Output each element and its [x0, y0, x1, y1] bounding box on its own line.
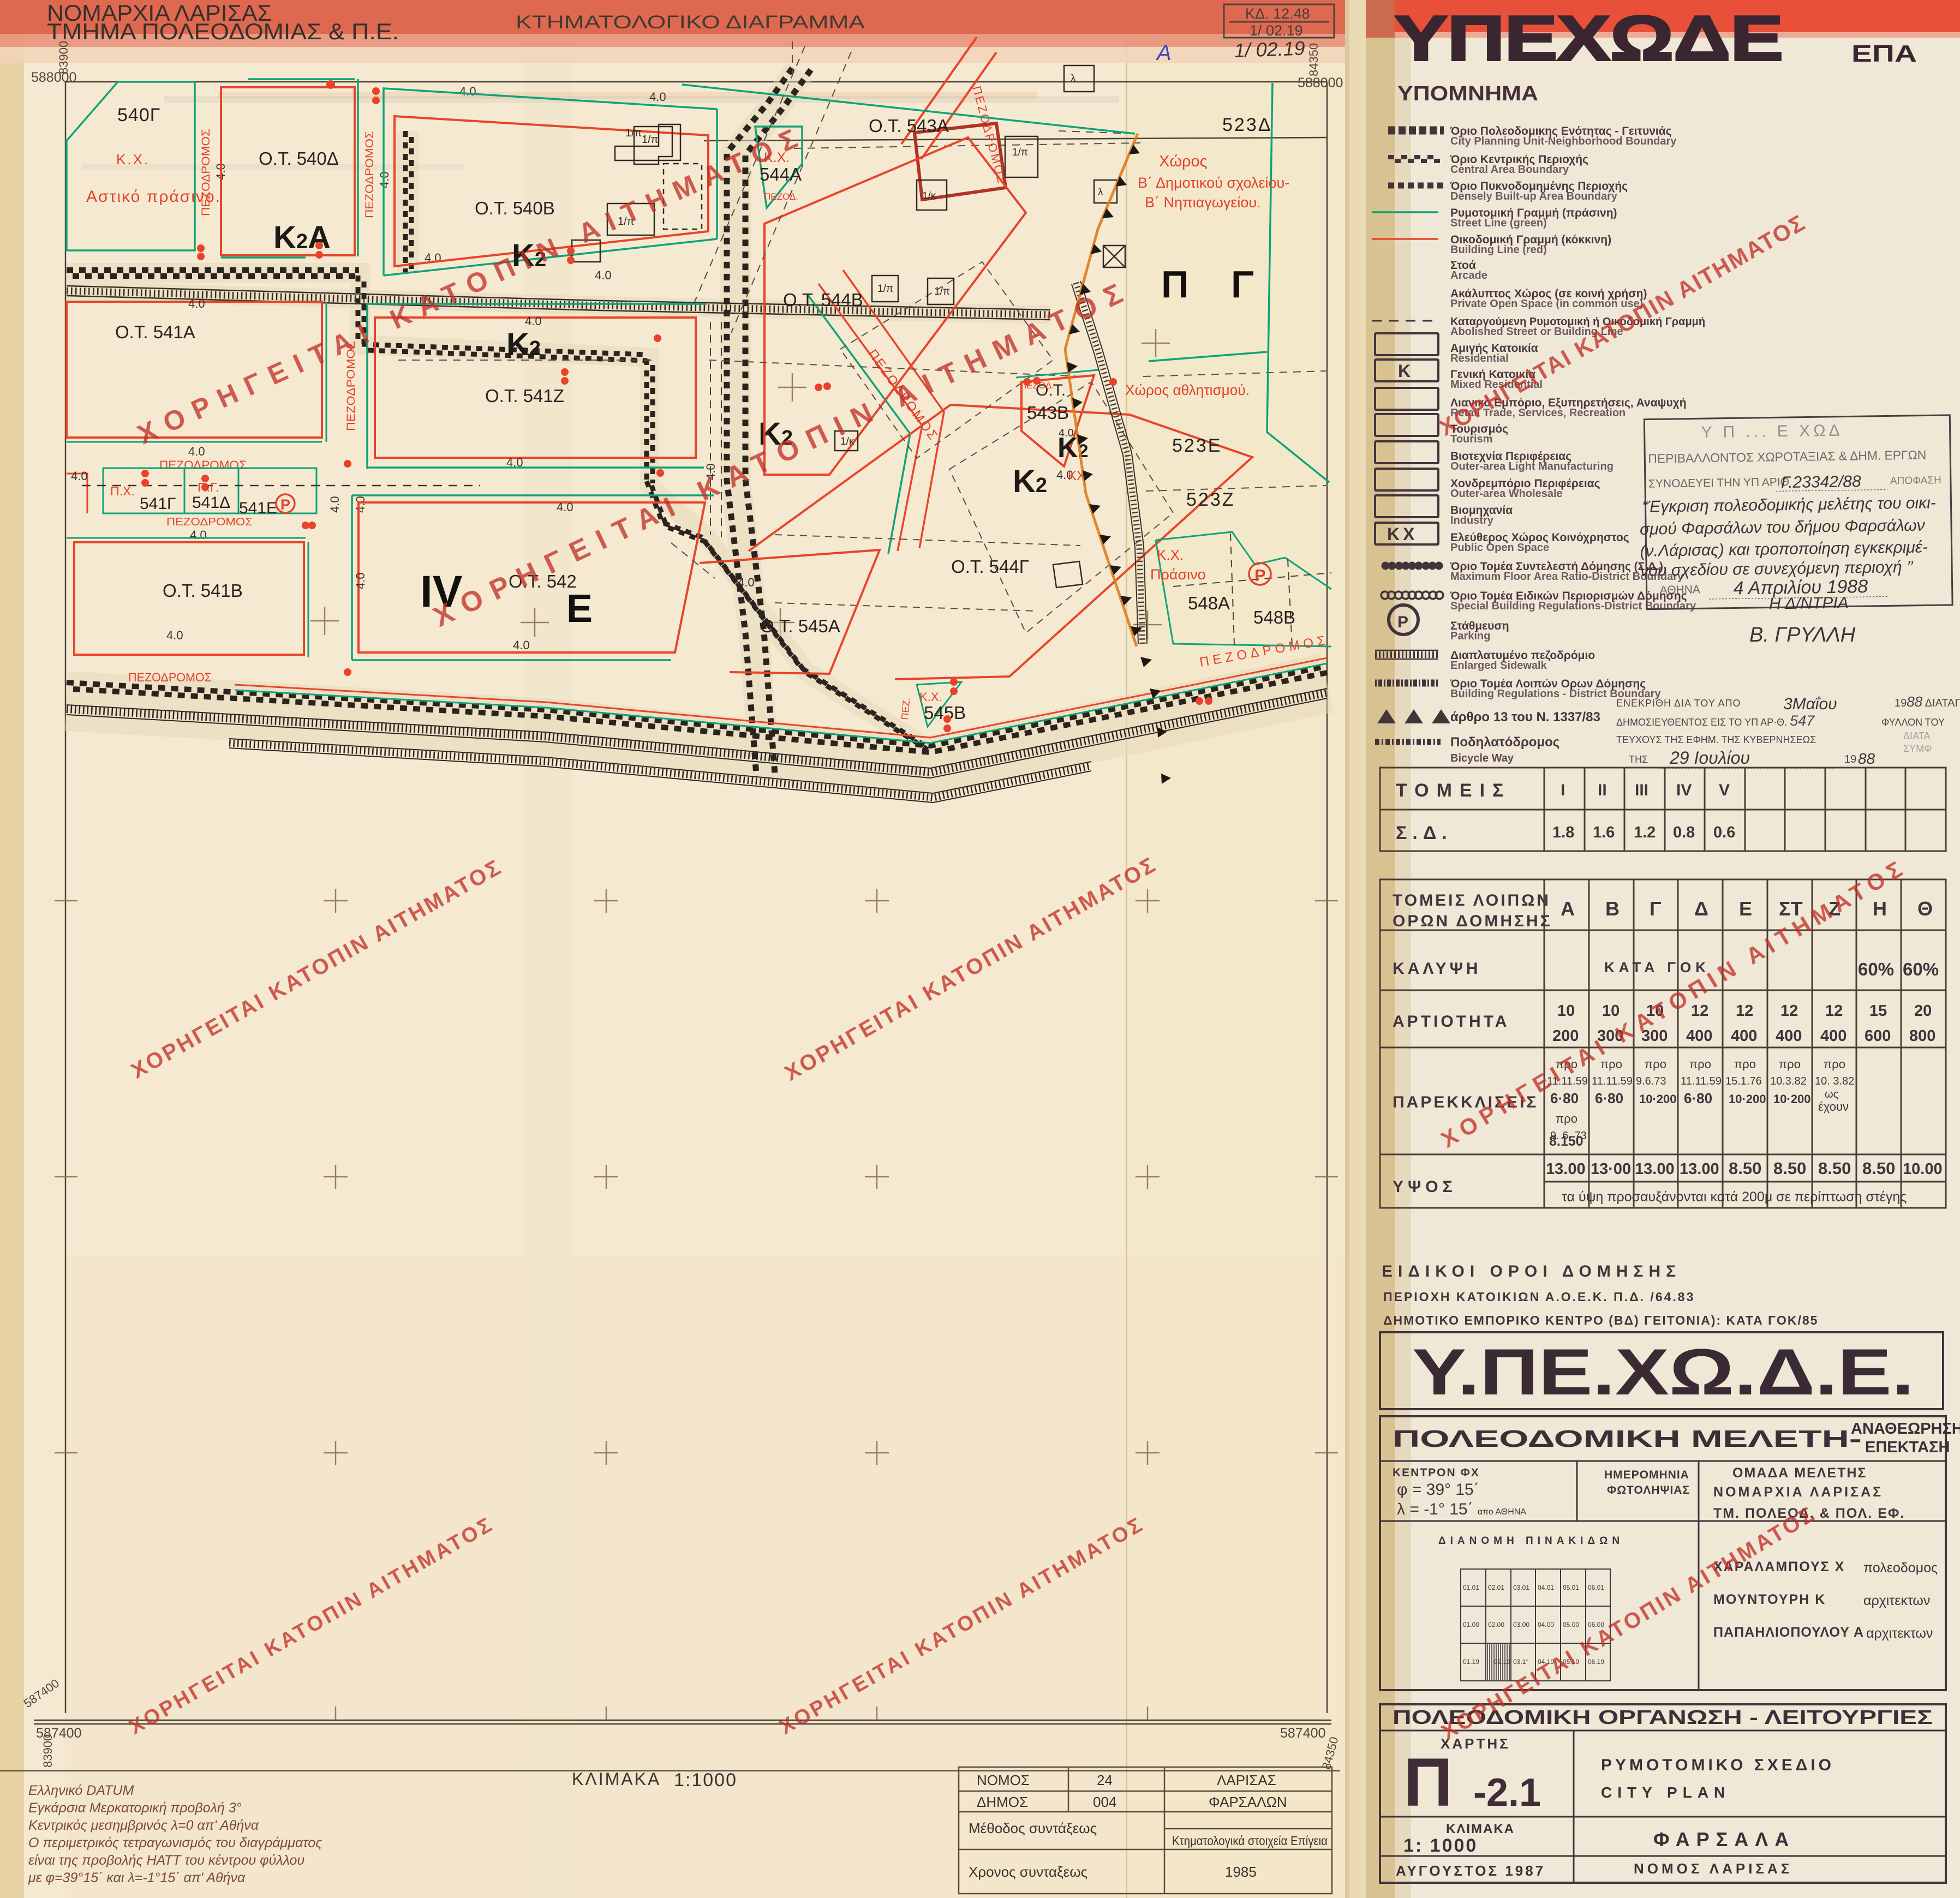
svg-text:Β΄ Δημοτικού σχολείου-: Β΄ Δημοτικού σχολείου-	[1138, 175, 1289, 191]
svg-text:13.00: 13.00	[1546, 1160, 1586, 1178]
svg-text:V: V	[1719, 781, 1730, 799]
svg-text:4.0: 4.0	[557, 500, 573, 514]
svg-text:ΝΟΜΑΡΧΙΑ ΛΑΡΙΣΑΣ: ΝΟΜΑΡΧΙΑ ΛΑΡΙΣΑΣ	[1713, 1484, 1883, 1500]
svg-text:Outer-area Light Manufacturing: Outer-area Light Manufacturing	[1450, 460, 1614, 472]
svg-text:Ελληνικό DATUM: Ελληνικό DATUM	[28, 1783, 134, 1798]
svg-text:Enlarged Sidewalk: Enlarged Sidewalk	[1450, 660, 1547, 672]
svg-text:-2.1: -2.1	[1473, 1771, 1541, 1815]
svg-text:01.00: 01.00	[1463, 1621, 1479, 1628]
svg-text:800: 800	[1909, 1027, 1935, 1045]
svg-text:City Planning Unit-Neighborhoo: City Planning Unit-Neighborhood Boundary	[1450, 135, 1677, 147]
svg-text:ΤΜΗΜΑ ΠΟΛΕΟΔΟΜΙΑΣ & Π.Ε.: ΤΜΗΜΑ ΠΟΛΕΟΔΟΜΙΑΣ & Π.Ε.	[47, 19, 399, 44]
svg-text:ΠΑΠΑΗΛΙΟΠΟΥΛΟΥ Α: ΠΑΠΑΗΛΙΟΠΟΥΛΟΥ Α	[1713, 1625, 1864, 1640]
svg-text:ΑΥΓΟΥΣΤΟΣ 1987: ΑΥΓΟΥΣΤΟΣ 1987	[1396, 1863, 1545, 1879]
svg-text:01.01: 01.01	[1463, 1584, 1479, 1591]
svg-text:Special Building Regulations-D: Special Building Regulations-District Bo…	[1450, 600, 1696, 612]
svg-text:Χώρος αθλητισμού.: Χώρος αθλητισμού.	[1125, 382, 1250, 398]
svg-text:Parking: Parking	[1450, 630, 1490, 642]
svg-text:11.11.59: 11.11.59	[1592, 1075, 1633, 1087]
svg-text:02.00: 02.00	[1488, 1621, 1504, 1628]
svg-text:λ: λ	[1098, 187, 1103, 198]
svg-text:Β: Β	[1605, 897, 1620, 920]
svg-text:Street Line (green): Street Line (green)	[1450, 217, 1547, 229]
svg-text:4.0: 4.0	[188, 445, 205, 458]
svg-text:Ο.Τ. 543Α: Ο.Τ. 543Α	[869, 116, 949, 136]
svg-text:Α: Α	[1561, 897, 1575, 920]
svg-text:P: P	[1254, 566, 1266, 585]
svg-text:523Ζ: 523Ζ	[1186, 489, 1235, 510]
svg-text:έχουν: έχουν	[1818, 1100, 1849, 1113]
svg-text:P: P	[1397, 613, 1408, 631]
svg-text:ΔΗΜΟΣ: ΔΗΜΟΣ	[977, 1794, 1028, 1810]
svg-text:9.6.73: 9.6.73	[1636, 1075, 1666, 1087]
svg-text:ΤΟΜΕΙΣ ΛΟΙΠΩΝ: ΤΟΜΕΙΣ ΛΟΙΠΩΝ	[1393, 891, 1551, 909]
svg-text:8.50: 8.50	[1729, 1159, 1761, 1178]
svg-text:01.19: 01.19	[1463, 1658, 1479, 1666]
svg-text:06.01: 06.01	[1588, 1584, 1604, 1591]
svg-text:04.01: 04.01	[1538, 1584, 1554, 1591]
svg-text:400: 400	[1686, 1027, 1712, 1045]
svg-text:Densely Built-up Area Boundary: Densely Built-up Area Boundary	[1450, 190, 1618, 202]
svg-text:8.50: 8.50	[1773, 1159, 1806, 1178]
svg-text:10·200: 10·200	[1773, 1092, 1811, 1106]
svg-text:Ποδηλατόδρομος: Ποδηλατόδρομος	[1450, 735, 1559, 750]
svg-text:ως: ως	[1825, 1088, 1839, 1100]
svg-text:ΤΗΣ: ΤΗΣ	[1629, 754, 1648, 765]
svg-text:Χώρος: Χώρος	[1159, 153, 1208, 170]
svg-text:Ο.Τ. 540Δ: Ο.Τ. 540Δ	[259, 148, 339, 169]
svg-text:84350: 84350	[1307, 43, 1320, 76]
svg-text:400: 400	[1776, 1027, 1802, 1045]
svg-text:ΚΔ. 12.48: ΚΔ. 12.48	[1245, 5, 1310, 22]
svg-text:Residential: Residential	[1450, 352, 1509, 364]
svg-text:Ε: Ε	[1739, 897, 1752, 920]
svg-text:ΜΟΥΝΤΟΥΡΗ Κ: ΜΟΥΝΤΟΥΡΗ Κ	[1713, 1592, 1826, 1607]
svg-text:Ο.Τ. 544Β: Ο.Τ. 544Β	[783, 290, 863, 310]
svg-text:Κ: Κ	[1398, 361, 1411, 381]
svg-text:4.0: 4.0	[328, 496, 342, 513]
svg-text:ΑΝΑΘΕΩΡΗΣΗ: ΑΝΑΘΕΩΡΗΣΗ	[1851, 1420, 1960, 1438]
svg-text:Εγκάρσια Μερκατορική προβολ: Εγκάρσια Μερκατορική προβολή 3°	[28, 1800, 242, 1816]
svg-text:6·80: 6·80	[1684, 1090, 1712, 1106]
svg-text:Κ.Χ.: Κ.Χ.	[919, 690, 942, 704]
svg-text:Πράσινο: Πράσινο	[1150, 566, 1206, 583]
svg-text:12: 12	[1736, 1002, 1753, 1020]
svg-text:ΡΥΜΟΤΟΜΙΚΟ ΣΧΕΔΙΟ: ΡΥΜΟΤΟΜΙΚΟ ΣΧΕΔΙΟ	[1601, 1756, 1834, 1774]
svg-text:541Γ: 541Γ	[140, 495, 176, 513]
svg-text:ΕΠΕΚΤΑΣΗ: ΕΠΕΚΤΑΣΗ	[1865, 1439, 1950, 1456]
svg-text:ΔΗΜΟΤΙΚΟ ΕΜΠΟΡΙΚΟ ΚΕΝΤΡΟ: ΔΗΜΟΤΙΚΟ ΕΜΠΟΡΙΚΟ ΚΕΝΤΡΟ (ΒΔ) ΓΕΙΤΟΝΙΑ):…	[1383, 1313, 1818, 1327]
svg-text:με φ=39°15΄ και λ=-1°15΄ απ': με φ=39°15΄ και λ=-1°15΄ απ' Αθήνα	[28, 1870, 246, 1885]
svg-text:12: 12	[1780, 1002, 1798, 1020]
svg-text:1/π: 1/π	[642, 134, 658, 146]
svg-text:ΕΠΑ: ΕΠΑ	[1851, 40, 1917, 67]
svg-text:πολεοδομος: πολεοδομος	[1863, 1560, 1938, 1576]
svg-text:8.150: 8.150	[1549, 1134, 1583, 1149]
svg-text:6·80: 6·80	[1550, 1090, 1579, 1106]
svg-text:12: 12	[1691, 1002, 1708, 1020]
svg-text:004: 004	[1093, 1794, 1116, 1810]
svg-text:10·200: 10·200	[1639, 1092, 1677, 1106]
svg-text:6·80: 6·80	[1595, 1090, 1623, 1106]
svg-text:Κτηματολογικά στοιχεία Επίγει: Κτηματολογικά στοιχεία Επίγεια	[1172, 1834, 1328, 1848]
svg-text:προ: προ	[1734, 1057, 1756, 1071]
svg-text:ΙΙ: ΙΙ	[1598, 781, 1607, 799]
svg-text:Ο.Τ. 545Α: Ο.Τ. 545Α	[760, 616, 840, 636]
svg-text:ΑΘΗΝΑ: ΑΘΗΝΑ	[1660, 583, 1701, 596]
svg-text:ΠΕΖΟΔ.: ΠΕΖΟΔ.	[764, 191, 798, 202]
svg-text:4.0: 4.0	[506, 456, 523, 469]
svg-text:13·00: 13·00	[1591, 1160, 1631, 1178]
svg-text:400: 400	[1820, 1027, 1847, 1045]
svg-text:Private Open Space (in common: Private Open Space (in common use)	[1450, 298, 1643, 310]
svg-text:543Β: 543Β	[1027, 403, 1069, 423]
svg-text:ΣΥΜΦ: ΣΥΜΦ	[1903, 743, 1932, 754]
svg-text:Ο.Τ. 541Β: Ο.Τ. 541Β	[163, 580, 243, 601]
svg-text:ΟΡΩΝ ΔΟΜΗΣΗΣ: ΟΡΩΝ ΔΟΜΗΣΗΣ	[1393, 912, 1552, 930]
svg-text:Γ: Γ	[1231, 263, 1254, 306]
svg-text:Building Line (red): Building Line (red)	[1450, 244, 1547, 256]
svg-text:4.0: 4.0	[525, 314, 542, 328]
svg-text:10: 10	[1602, 1002, 1620, 1020]
svg-text:Ο.Τ. 540Β: Ο.Τ. 540Β	[475, 198, 555, 218]
svg-text:Ο.Τ. 541Α: Ο.Τ. 541Α	[115, 322, 195, 342]
svg-text:Π: Π	[1161, 263, 1189, 306]
svg-text:προ: προ	[1689, 1057, 1711, 1071]
svg-text:ΔΙΑΝΟΜΗ ΠΙΝΑΚΙΔΩΝ: ΔΙΑΝΟΜΗ ΠΙΝΑΚΙΔΩΝ	[1438, 1535, 1624, 1547]
svg-text:αρχιτεκτων: αρχιτεκτων	[1863, 1593, 1930, 1608]
svg-text:E: E	[566, 587, 593, 631]
svg-text:ΑΡΤΙΟΤΗΤΑ: ΑΡΤΙΟΤΗΤΑ	[1393, 1013, 1509, 1031]
svg-text:Π.Χ.: Π.Χ.	[110, 484, 135, 498]
svg-text:Δ: Δ	[1694, 897, 1708, 920]
svg-text:Η Δ/ΝΤΡΙΑ: Η Δ/ΝΤΡΙΑ	[1769, 594, 1849, 613]
svg-text:ΝΟΜΟΣ: ΝΟΜΟΣ	[977, 1772, 1030, 1788]
svg-text:προ: προ	[1556, 1112, 1577, 1125]
svg-text:ΙΙΙ: ΙΙΙ	[1635, 781, 1648, 799]
svg-text:04.00: 04.00	[1538, 1621, 1554, 1628]
svg-text:ΠΟΛΕΟΔΟΜΙΚΗ ΜΕΛΕΤΗ-: ΠΟΛΕΟΔΟΜΙΚΗ ΜΕΛΕΤΗ-	[1393, 1426, 1862, 1452]
svg-text:A: A	[1156, 41, 1172, 65]
svg-text:83900: 83900	[57, 41, 70, 74]
svg-text:ΦΑΡΣΑΛΩΝ: ΦΑΡΣΑΛΩΝ	[1209, 1794, 1287, 1810]
svg-text:ΠΕΖΟΔΡΟΜΟΣ: ΠΕΖΟΔΡΟΜΟΣ	[166, 516, 253, 528]
svg-text:10·200: 10·200	[1729, 1092, 1766, 1106]
svg-text:19: 19	[1844, 753, 1856, 765]
svg-text:541Ε: 541Ε	[239, 499, 277, 517]
svg-text:ΚΕΝΤΡΟΝ ΦΧ: ΚΕΝΤΡΟΝ ΦΧ	[1393, 1466, 1480, 1479]
svg-text:ΗΜΕΡΟΜΗΝΙΑ: ΗΜΕΡΟΜΗΝΙΑ	[1604, 1469, 1689, 1481]
svg-text:02.01: 02.01	[1488, 1584, 1504, 1591]
svg-text:1:1000: 1:1000	[674, 1770, 737, 1791]
svg-text:10.00: 10.00	[1903, 1160, 1943, 1178]
svg-text:4.0: 4.0	[188, 297, 205, 310]
svg-text:Κ.Χ.: Κ.Χ.	[1157, 547, 1184, 563]
svg-text:προ: προ	[1645, 1057, 1666, 1071]
svg-text:11.11.59: 11.11.59	[1681, 1075, 1722, 1087]
svg-text:05.00: 05.00	[1563, 1621, 1579, 1628]
svg-text:4.0: 4.0	[71, 469, 88, 483]
svg-text:Ο.Τ. 544Γ: Ο.Τ. 544Γ	[951, 556, 1029, 577]
svg-text:600: 600	[1865, 1027, 1891, 1045]
svg-text:10.3.82: 10.3.82	[1770, 1075, 1807, 1087]
svg-text:1/ 02.19: 1/ 02.19	[1250, 22, 1303, 39]
svg-text:ΙV: ΙV	[1676, 781, 1692, 799]
svg-text:4.0: 4.0	[513, 638, 530, 652]
svg-text:8.50: 8.50	[1818, 1159, 1851, 1178]
svg-text:ΔΙΑΤΑ: ΔΙΑΤΑ	[1903, 731, 1930, 741]
svg-text:ΛΑΡΙΣΑΣ: ΛΑΡΙΣΑΣ	[1217, 1772, 1276, 1788]
svg-text:άρθρο 13 του Ν. 1337/83: άρθρο 13 του Ν. 1337/83	[1450, 710, 1600, 725]
svg-text:03.1°: 03.1°	[1513, 1658, 1528, 1666]
svg-text:15: 15	[1869, 1002, 1887, 1020]
svg-text:4.0: 4.0	[190, 528, 207, 542]
svg-text:4.0: 4.0	[459, 85, 476, 98]
svg-text:φ = 39° 15΄: φ = 39° 15΄	[1397, 1481, 1479, 1499]
svg-text:24: 24	[1097, 1772, 1113, 1788]
svg-text:541Δ: 541Δ	[192, 494, 230, 512]
svg-text:Υ.ΠΕ.ΧΩ.Δ.Ε.: Υ.ΠΕ.ΧΩ.Δ.Ε.	[1412, 1336, 1914, 1409]
svg-text:1.6: 1.6	[1593, 824, 1615, 841]
svg-text:P: P	[280, 496, 290, 513]
svg-text:Μέθοδος συντάξεως: Μέθοδος συντάξεως	[969, 1820, 1097, 1836]
svg-text:προ: προ	[1779, 1057, 1801, 1071]
svg-text:1/π: 1/π	[877, 283, 893, 295]
svg-text:ΠΕΖ.: ΠΕΖ.	[899, 697, 912, 721]
svg-text:τα ύψη προσαυξάνονται κατά: τα ύψη προσαυξάνονται κατά 200μ σε περίπ…	[1562, 1189, 1907, 1205]
svg-text:CITY PLAN: CITY PLAN	[1601, 1784, 1730, 1801]
svg-text:60%: 60%	[1903, 959, 1939, 979]
svg-text:4.0: 4.0	[354, 496, 367, 513]
svg-text:8.50: 8.50	[1862, 1159, 1895, 1178]
svg-text:ΥΨΟΣ: ΥΨΟΣ	[1393, 1178, 1457, 1196]
svg-text:Arcade: Arcade	[1450, 270, 1487, 282]
svg-text:1985: 1985	[1225, 1864, 1257, 1880]
svg-text:1/κ: 1/κ	[922, 190, 936, 202]
svg-text:05.01: 05.01	[1563, 1584, 1579, 1591]
svg-text:νου σχεδίου σε συνεχόμενη περι: νου σχεδίου σε συνεχόμενη περιοχή ’’	[1640, 558, 1914, 580]
svg-text:ΠΕΖΟΔΡΟΜΟΣ: ΠΕΖΟΔΡΟΜΟΣ	[200, 129, 212, 216]
svg-text:ΚΛΙΜΑΚΑ: ΚΛΙΜΑΚΑ	[572, 1769, 661, 1789]
svg-text:1/ 02.19: 1/ 02.19	[1234, 37, 1305, 62]
svg-text:4.0: 4.0	[738, 576, 755, 589]
svg-text:88: 88	[1858, 750, 1875, 767]
svg-text:1/π: 1/π	[934, 286, 950, 297]
svg-text:Ι: Ι	[1561, 781, 1565, 799]
svg-text:Central Area Boundary: Central Area Boundary	[1450, 164, 1569, 176]
svg-text:ΣΥΝΟΔΕΥΕΙ ΤΗΝ ΥΠ ΑΡΙΘ: ΣΥΝΟΔΕΥΕΙ ΤΗΝ ΥΠ ΑΡΙΘ	[1648, 476, 1789, 490]
svg-text:83900: 83900	[41, 1734, 55, 1768]
svg-text:ΕΝΕΚΡΙΘΗ ΔΙΑ ΤΟΥ ΑΠΟ: ΕΝΕΚΡΙΘΗ ΔΙΑ ΤΟΥ ΑΠΟ	[1616, 698, 1741, 709]
svg-text:Χρονος συνταξεως: Χρονος συνταξεως	[969, 1864, 1087, 1880]
svg-text:Bicycle Way: Bicycle Way	[1450, 752, 1514, 764]
svg-text:4.0: 4.0	[354, 572, 367, 589]
svg-text:ΥΠΟΜΝΗΜΑ: ΥΠΟΜΝΗΜΑ	[1397, 82, 1538, 105]
svg-text:60%: 60%	[1858, 959, 1894, 979]
svg-text:Industry: Industry	[1450, 514, 1494, 526]
svg-text:ΕΙΔΙΚΟΙ ΟΡΟΙ ΔΟΜΗΣΗΣ: ΕΙΔΙΚΟΙ ΟΡΟΙ ΔΟΜΗΣΗΣ	[1382, 1262, 1681, 1280]
svg-text:1/π: 1/π	[1012, 147, 1028, 158]
svg-text:02.19: 02.19	[1494, 1658, 1510, 1666]
svg-text:ΚΑΛΥΨΗ: ΚΑΛΥΨΗ	[1393, 960, 1481, 978]
svg-text:1: 1000: 1: 1000	[1403, 1835, 1478, 1856]
svg-text:0.6: 0.6	[1713, 824, 1735, 841]
svg-text:13.00: 13.00	[1635, 1160, 1675, 1178]
svg-text:ΚΑΤΑ ΓΟΚ: ΚΑΤΑ ΓΟΚ	[1604, 959, 1710, 975]
svg-text:Υ Π ... Ε ΧΩΔ: Υ Π ... Ε ΧΩΔ	[1701, 422, 1843, 442]
svg-text:αρχιτεκτων: αρχιτεκτων	[1866, 1626, 1933, 1641]
svg-text:ΠΕΡΙΟΧΗ ΚΑΤΟΙΚΙΩΝ Α.Ο.Ε.Κ.: ΠΕΡΙΟΧΗ ΚΑΤΟΙΚΙΩΝ Α.Ο.Ε.Κ. Π.Δ. /64.83	[1383, 1290, 1695, 1304]
svg-text:Κεντρικός μεσημβρινός λ=0 α: Κεντρικός μεσημβρινός λ=0 απ' Αθήνα	[28, 1818, 259, 1833]
svg-text:ΤΟΜΕΙΣ: ΤΟΜΕΙΣ	[1396, 780, 1511, 801]
svg-text:Γ.23342/88: Γ.23342/88	[1781, 472, 1861, 492]
svg-text:Η: Η	[1873, 897, 1887, 920]
svg-text:ΚΧ: ΚΧ	[1387, 524, 1418, 544]
svg-text:Π: Π	[1403, 1745, 1453, 1821]
svg-text:είναι της προβολής ΗΑΤΤ το: είναι της προβολής ΗΑΤΤ του κέντρου φύλλ…	[28, 1853, 304, 1868]
svg-text:540Γ: 540Γ	[117, 105, 160, 125]
svg-text:ΦΩΤΟΛΗΨΙΑΣ: ΦΩΤΟΛΗΨΙΑΣ	[1607, 1484, 1690, 1496]
svg-text:3Μαΐου: 3Μαΐου	[1783, 695, 1837, 713]
svg-text:ΠΕΖΟΔΡΟΜΟΣ: ΠΕΖΟΔΡΟΜΟΣ	[128, 670, 212, 684]
svg-text:ΠΕΖΟΔΡΟΜΟΣ: ΠΕΖΟΔΡΟΜΟΣ	[159, 458, 247, 472]
svg-text:Ο.Τ. 541Ζ: Ο.Τ. 541Ζ	[485, 386, 564, 406]
svg-text:Σ.Δ.: Σ.Δ.	[1396, 823, 1453, 843]
svg-text:10: 10	[1557, 1002, 1575, 1020]
svg-text:Κ.Χ.: Κ.Χ.	[116, 151, 150, 167]
svg-text:20: 20	[1914, 1002, 1932, 1020]
svg-text:588000: 588000	[1298, 75, 1343, 91]
svg-text:03.01: 03.01	[1513, 1584, 1529, 1591]
svg-text:200: 200	[1552, 1027, 1579, 1045]
svg-text:15.1.76: 15.1.76	[1725, 1075, 1762, 1087]
svg-text:4.0: 4.0	[649, 90, 666, 104]
svg-text:4.0: 4.0	[166, 628, 183, 642]
svg-text:προ: προ	[1824, 1057, 1845, 1071]
svg-text:1/π: 1/π	[625, 127, 642, 139]
svg-text:Public Open Space: Public Open Space	[1450, 542, 1549, 554]
svg-text:523Δ: 523Δ	[1222, 115, 1272, 135]
svg-text:λ: λ	[1071, 73, 1076, 85]
svg-text:ΚΤΗΜΑΤΟΛΟΓΙΚΟ ΔΙΑΓΡΑΜΜΑ: ΚΤΗΜΑΤΟΛΟΓΙΚΟ ΔΙΑΓΡΑΜΜΑ	[516, 12, 865, 33]
svg-text:Ο περιμετρικός τετραγωνισμός: Ο περιμετρικός τετραγωνισμός του διαγράμ…	[28, 1835, 322, 1851]
svg-text:Β. ΓΡΥΛΛΗ: Β. ΓΡΥΛΛΗ	[1749, 624, 1856, 646]
svg-text:ΑΠΟΦΑΣΗ: ΑΠΟΦΑΣΗ	[1890, 475, 1941, 487]
svg-text:ΟΜΑΔΑ ΜΕΛΕΤΗΣ: ΟΜΑΔΑ ΜΕΛΕΤΗΣ	[1732, 1465, 1867, 1481]
svg-text:4.0: 4.0	[595, 268, 612, 282]
svg-text:ΥΠΕΧΩΔΕ: ΥΠΕΧΩΔΕ	[1395, 3, 1783, 74]
svg-text:03.00: 03.00	[1513, 1621, 1529, 1628]
svg-text:523Ε: 523Ε	[1172, 435, 1222, 456]
svg-text:0.8: 0.8	[1673, 824, 1695, 841]
svg-text:ΚΛΙΜΑΚΑ: ΚΛΙΜΑΚΑ	[1446, 1822, 1515, 1836]
svg-text:Outer-area Wholesale: Outer-area Wholesale	[1450, 488, 1563, 500]
svg-text:Γ: Γ	[1650, 897, 1662, 920]
svg-text:Β΄ Νηπιαγωγείου.: Β΄ Νηπιαγωγείου.	[1145, 194, 1261, 211]
svg-text:12: 12	[1825, 1002, 1843, 1020]
svg-text:13.00: 13.00	[1680, 1160, 1719, 1178]
svg-text:548Α: 548Α	[1188, 593, 1230, 613]
svg-text:1.2: 1.2	[1634, 824, 1656, 841]
svg-text:4.0: 4.0	[1059, 427, 1074, 439]
svg-text:ΦΥΛΛΟΝ ΤΟΥ: ΦΥΛΛΟΝ ΤΟΥ	[1881, 717, 1945, 728]
svg-text:548Β: 548Β	[1253, 607, 1295, 627]
svg-text:29 Ιουλίου: 29 Ιουλίου	[1669, 748, 1750, 768]
svg-text:400: 400	[1731, 1027, 1757, 1045]
svg-text:ΦΑΡΣΑΛΑ: ΦΑΡΣΑΛΑ	[1653, 1828, 1795, 1851]
svg-text:1.8: 1.8	[1552, 824, 1574, 841]
svg-text:ΤΕΥΧΟΥΣ ΤΗΣ ΕΦΗΜ. ΤΗΣ ΚΥΒΕ: ΤΕΥΧΟΥΣ ΤΗΣ ΕΦΗΜ. ΤΗΣ ΚΥΒΕΡΝΗΣΕΩΣ	[1616, 734, 1816, 745]
svg-text:ΠΕΖΟΔΡΟΜΟΣ: ΠΕΖΟΔΡΟΜΟΣ	[363, 131, 376, 218]
svg-text:587400: 587400	[1280, 1726, 1325, 1741]
svg-text:10. 3.82: 10. 3.82	[1815, 1075, 1854, 1087]
svg-text:ΝΟΜΟΣ ΛΑΡΙΣΑΣ: ΝΟΜΟΣ ΛΑΡΙΣΑΣ	[1634, 1860, 1792, 1877]
svg-text:Θ: Θ	[1917, 897, 1933, 920]
